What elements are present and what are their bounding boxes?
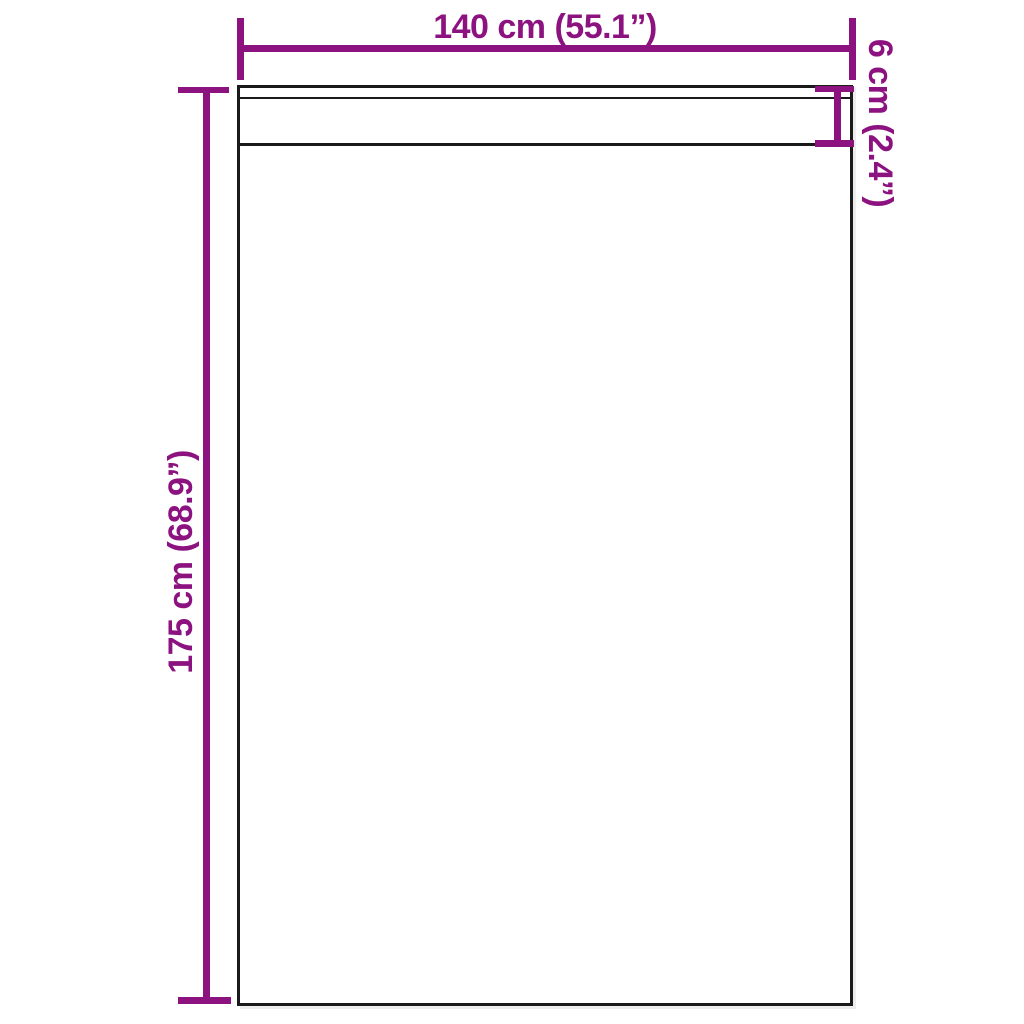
height-dimension-tick-bottom <box>178 997 231 1004</box>
curtain-panel <box>237 85 853 1006</box>
height-dimension-tick-top <box>178 87 229 93</box>
width-dimension-label: 140 cm (55.1”) <box>433 10 657 44</box>
width-dimension-tick-right <box>849 18 856 80</box>
height-dimension-line <box>203 89 210 1000</box>
rod-pocket-seam-line <box>237 97 853 99</box>
height-dimension-label: 175 cm (68.9”) <box>164 450 198 674</box>
header-dimension-label: 6 cm (2.4”) <box>863 39 897 207</box>
width-dimension-tick-left <box>237 18 244 80</box>
header-dimension-line <box>834 88 841 146</box>
dimension-diagram: 140 cm (55.1”) 175 cm (68.9”) 6 cm (2.4”… <box>0 0 1024 1024</box>
header-bottom-seam-line <box>237 143 853 146</box>
width-dimension-line <box>240 45 853 52</box>
header-dimension-tick-bottom <box>815 140 854 147</box>
header-dimension-tick-top <box>815 86 854 92</box>
